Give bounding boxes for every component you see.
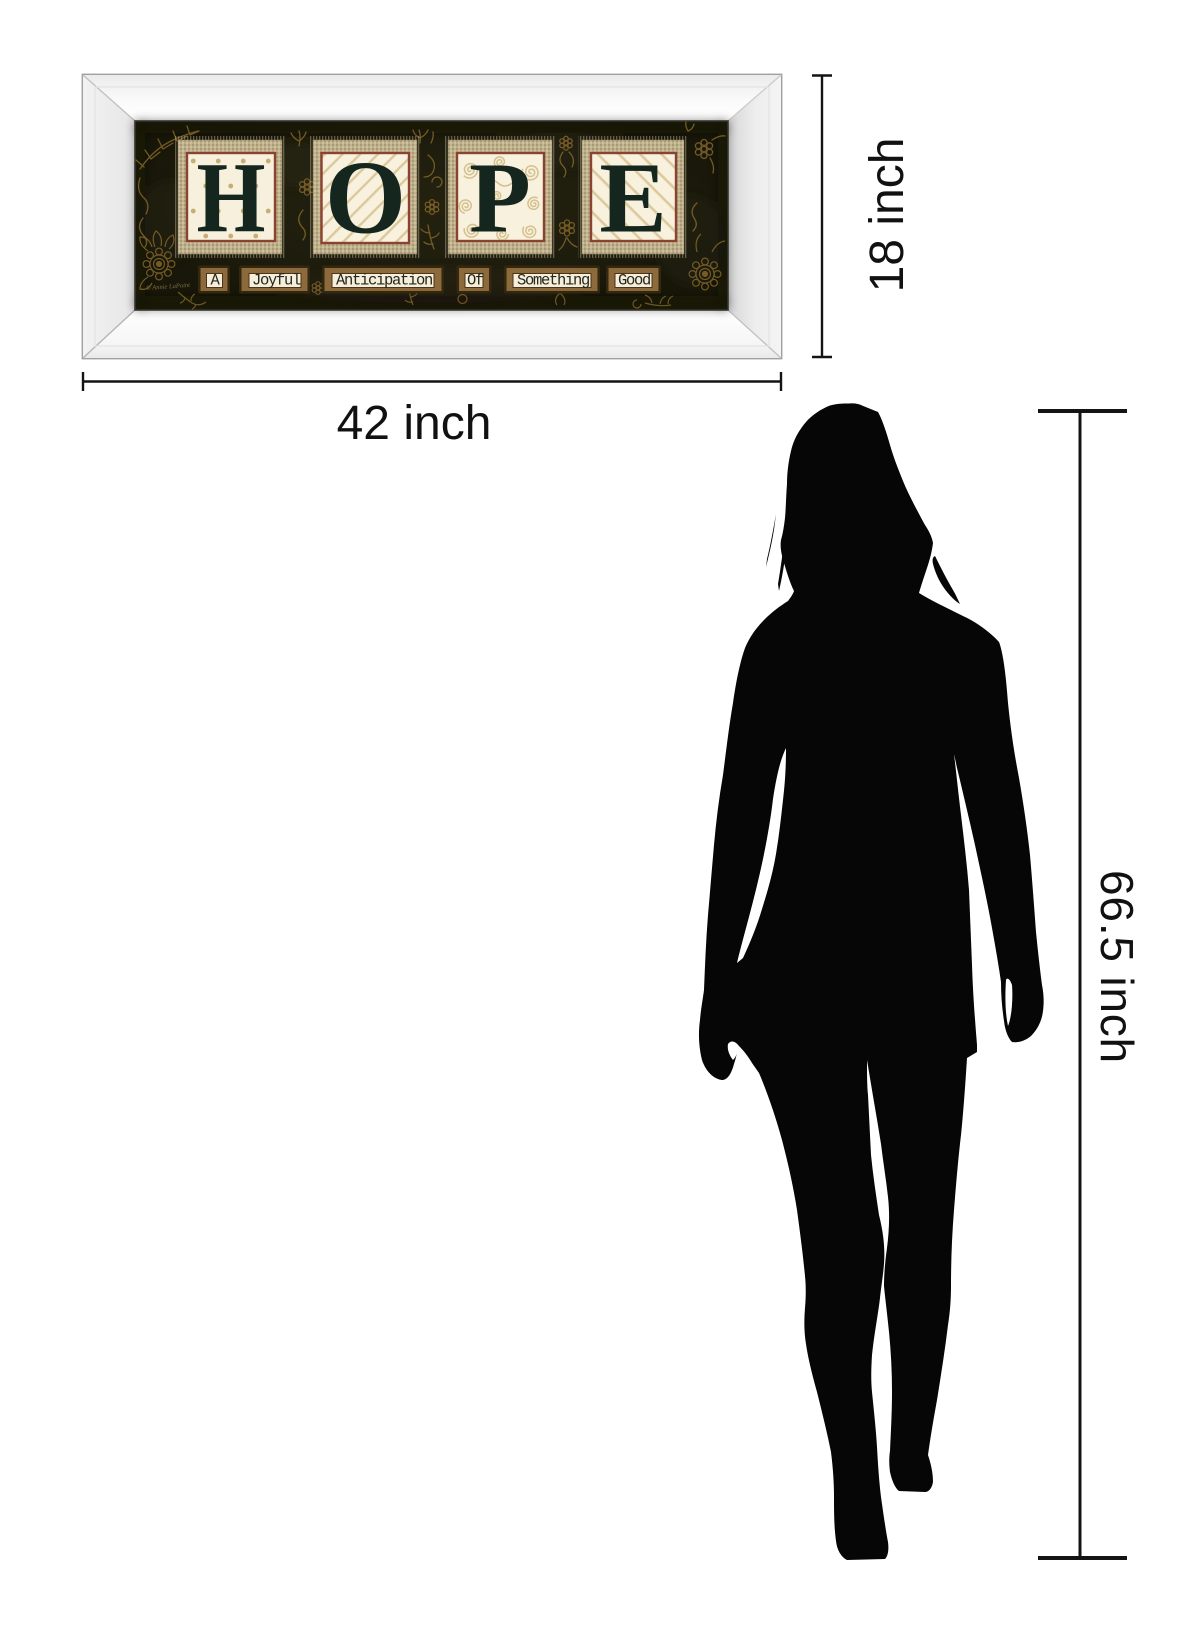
svg-text:42 inch: 42 inch xyxy=(337,397,492,450)
svg-text:H: H xyxy=(197,142,266,254)
svg-text:Of: Of xyxy=(467,272,484,290)
svg-text:18 inch: 18 inch xyxy=(861,138,914,293)
svg-text:P: P xyxy=(469,142,531,254)
svg-text:Anticipation: Anticipation xyxy=(336,272,432,290)
svg-text:Something: Something xyxy=(517,272,589,290)
svg-text:E: E xyxy=(599,142,666,254)
svg-text:Good: Good xyxy=(618,272,650,290)
svg-text:Joyful: Joyful xyxy=(252,272,301,290)
svg-text:66.5 inch: 66.5 inch xyxy=(1091,870,1143,1064)
svg-text:O: O xyxy=(325,139,406,256)
